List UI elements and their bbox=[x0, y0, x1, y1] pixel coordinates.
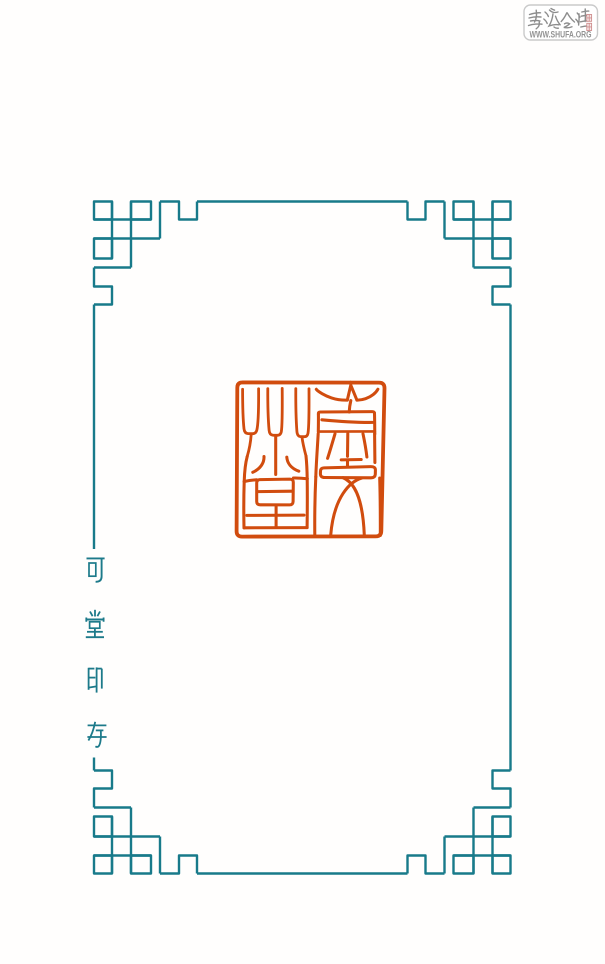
svg-text:WWW.SHUFA.ORG: WWW.SHUFA.ORG bbox=[530, 29, 592, 39]
